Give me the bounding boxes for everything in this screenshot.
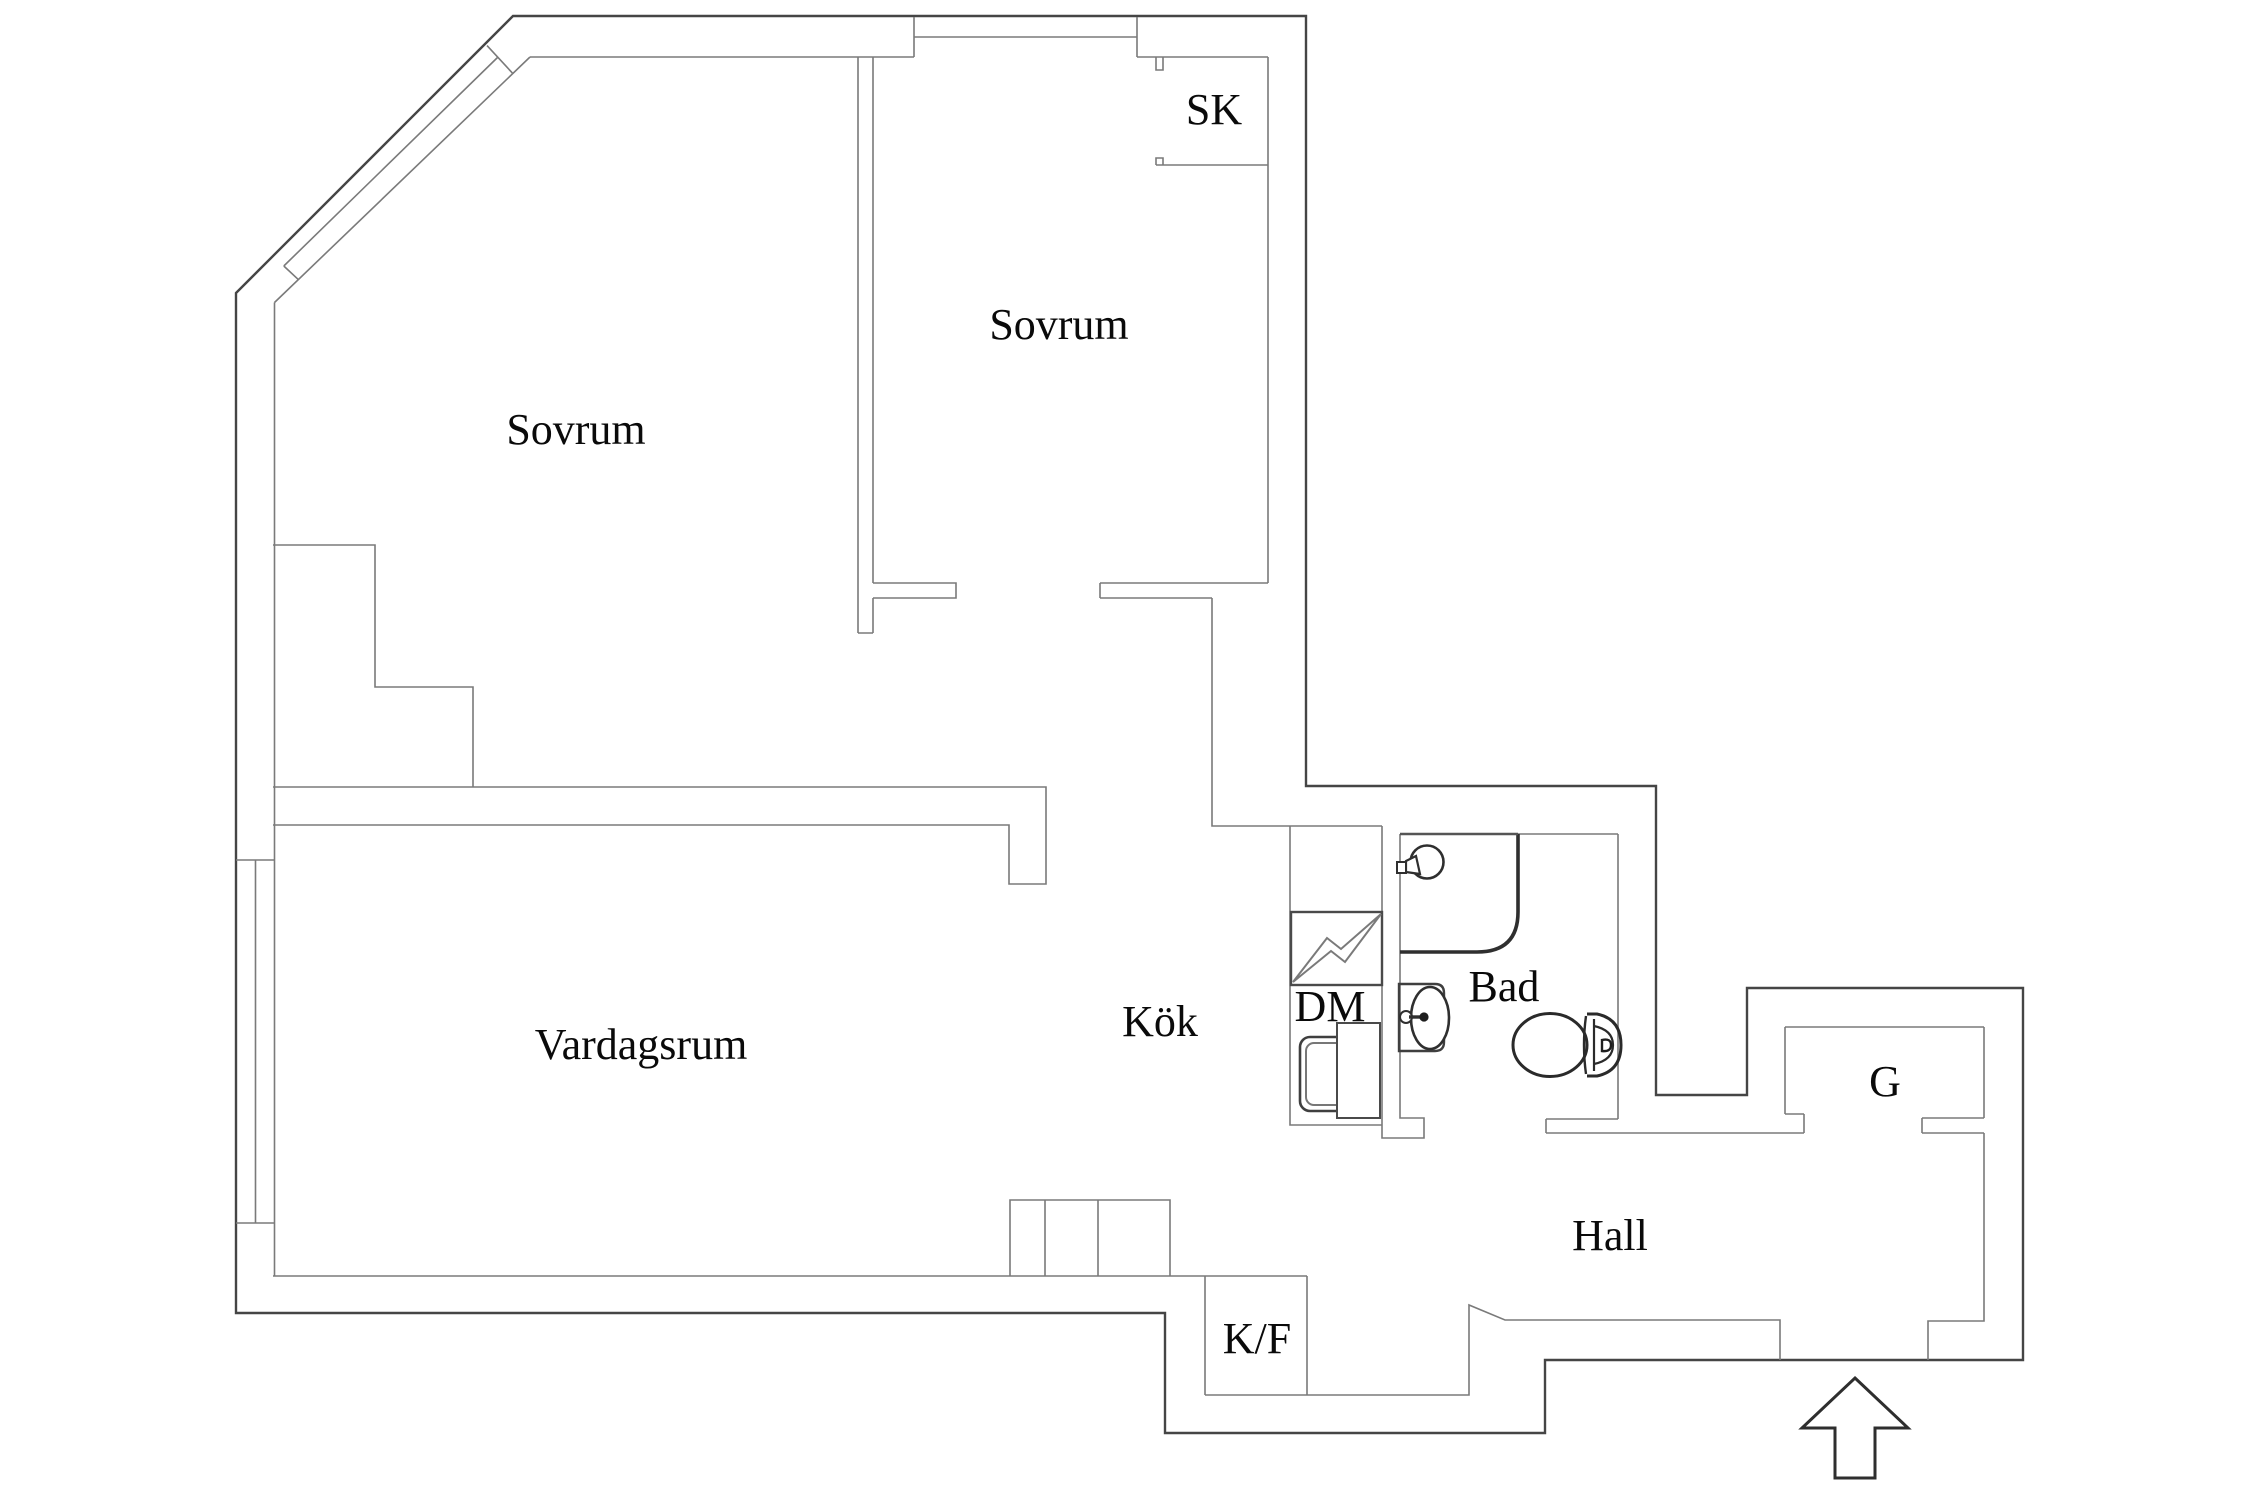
svg-text:SK: SK (1186, 85, 1242, 134)
svg-text:G: G (1869, 1057, 1901, 1106)
svg-text:Vardagsrum: Vardagsrum (535, 1020, 748, 1069)
svg-text:DM: DM (1295, 982, 1366, 1031)
svg-text:K/F: K/F (1223, 1314, 1291, 1363)
svg-text:Bad: Bad (1469, 962, 1540, 1011)
svg-text:Hall: Hall (1572, 1211, 1648, 1260)
svg-text:Kök: Kök (1122, 997, 1198, 1046)
svg-text:Sovrum: Sovrum (506, 405, 645, 454)
svg-text:Sovrum: Sovrum (989, 300, 1128, 349)
